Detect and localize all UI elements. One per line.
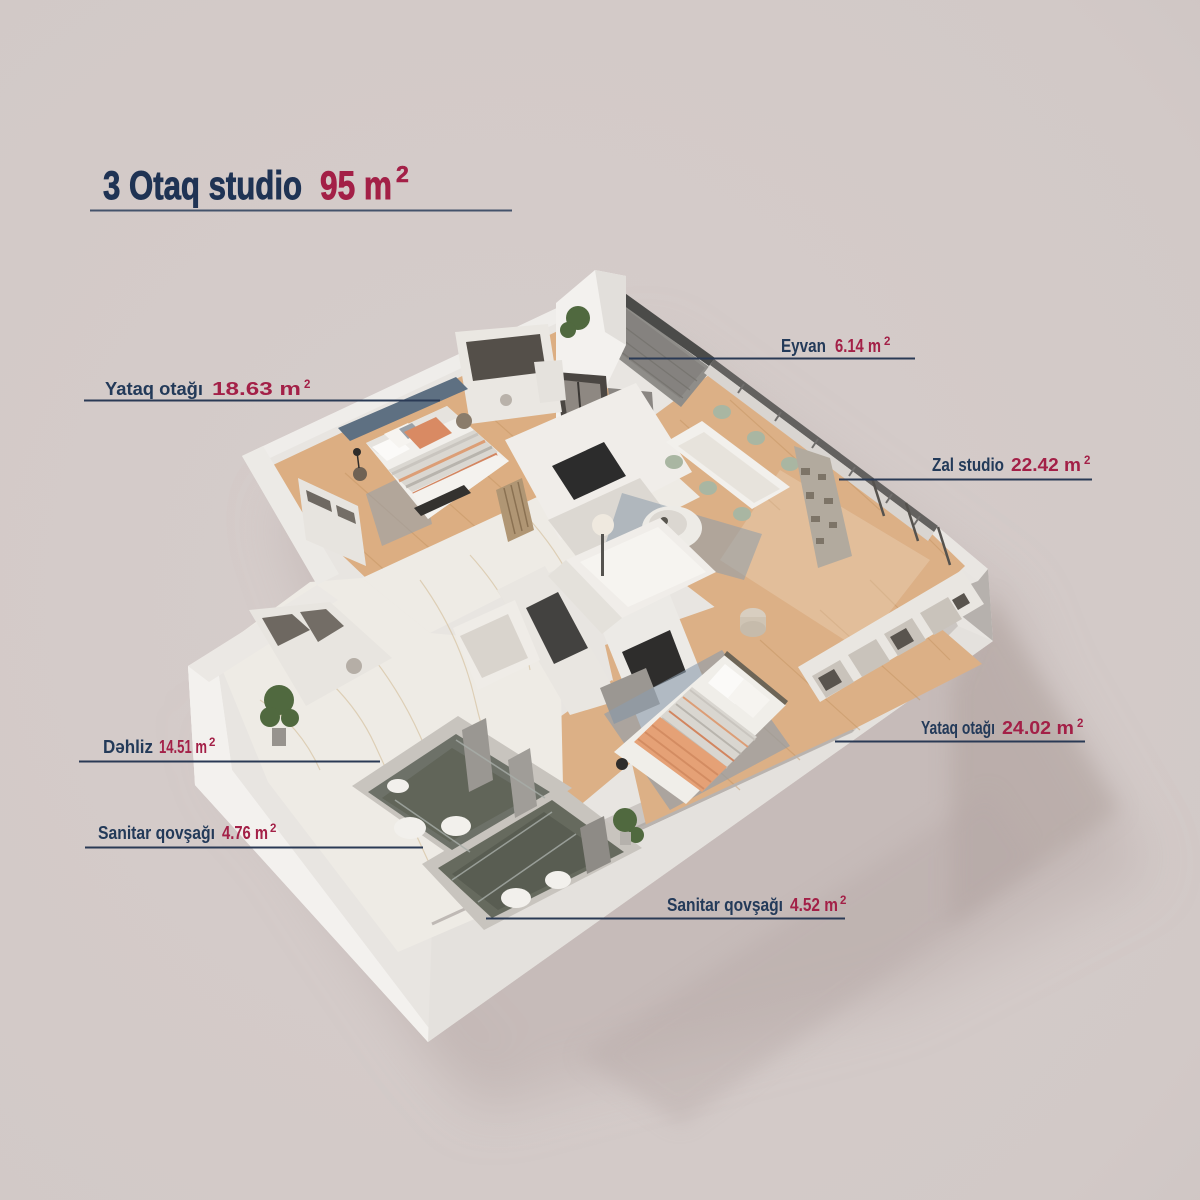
svg-text:2: 2 (396, 161, 409, 187)
svg-text:Yataq otağı: Yataq otağı (105, 379, 203, 399)
svg-text:2: 2 (1084, 455, 1090, 467)
svg-text:4.52 m: 4.52 m (790, 895, 838, 915)
svg-text:2: 2 (884, 336, 890, 348)
svg-text:2: 2 (209, 737, 215, 749)
svg-text:3 Otaq studio: 3 Otaq studio (103, 164, 302, 208)
svg-text:Dəhliz: Dəhliz (103, 737, 153, 757)
svg-text:2: 2 (304, 379, 310, 391)
svg-text:14.51 m: 14.51 m (159, 737, 207, 757)
svg-text:6.14 m: 6.14 m (835, 336, 881, 356)
svg-text:2: 2 (1077, 718, 1083, 730)
svg-text:Yataq otağı: Yataq otağı (921, 718, 995, 738)
svg-text:Sanitar qovşağı: Sanitar qovşağı (667, 895, 783, 915)
svg-text:2: 2 (270, 823, 276, 835)
svg-text:18.63 m: 18.63 m (212, 379, 301, 399)
svg-text:24.02 m: 24.02 m (1002, 718, 1074, 738)
svg-text:2: 2 (840, 895, 846, 907)
svg-text:Zal studio: Zal studio (932, 455, 1004, 475)
svg-text:4.76 m: 4.76 m (222, 823, 268, 843)
svg-text:Eyvan: Eyvan (781, 336, 826, 356)
svg-text:Sanitar qovşağı: Sanitar qovşağı (98, 823, 215, 843)
svg-text:95 m: 95 m (320, 164, 392, 208)
svg-text:22.42 m: 22.42 m (1011, 455, 1081, 475)
